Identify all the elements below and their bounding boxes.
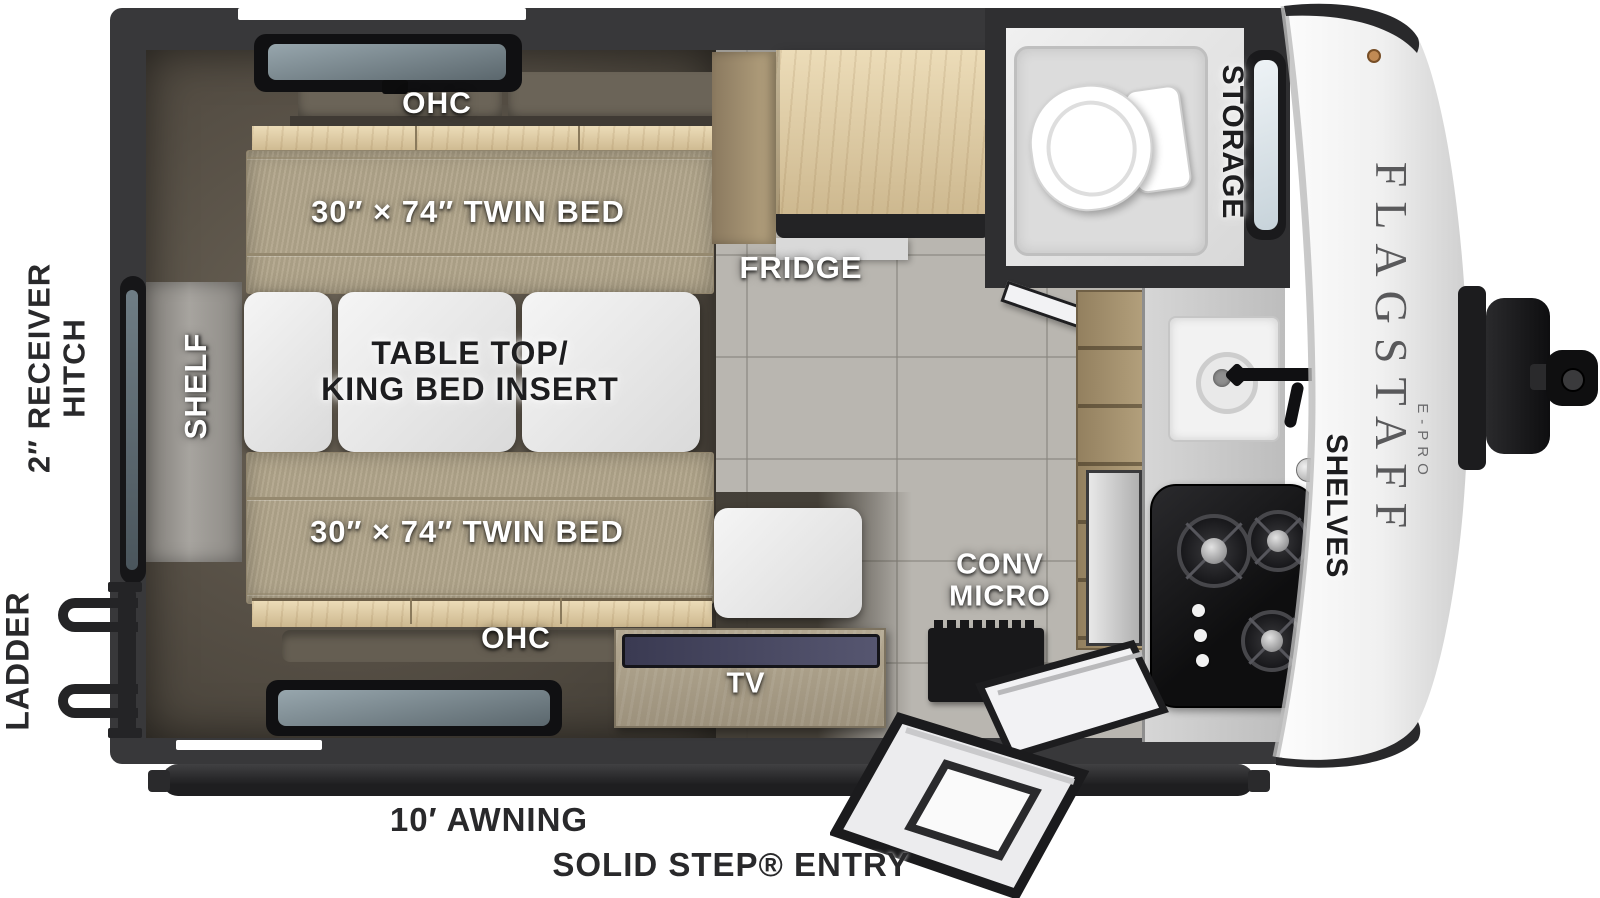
cooktop-control-dot (1194, 629, 1207, 642)
convection-microwave (1086, 470, 1142, 646)
window-marker-bottom (176, 740, 322, 750)
table-top-insert-1 (244, 292, 332, 452)
tv-label: TV (726, 668, 765, 701)
shelf-label: SHELF (178, 333, 214, 440)
wardrobe-cabinet (776, 50, 994, 216)
awning-label: 10′ AWNING (390, 801, 588, 839)
entry-label: SOLID STEP® ENTRY (552, 846, 909, 884)
bedroom-window-glass (278, 690, 550, 726)
bench-seat (714, 508, 862, 618)
brand-model: E-PRO (1414, 252, 1431, 633)
awning-bracket (148, 770, 170, 792)
roof-vent-glass (268, 44, 506, 80)
cooktop-control-dot (1192, 604, 1205, 617)
cooktop-control-dot (1196, 654, 1209, 667)
window-marker-top (238, 8, 526, 20)
twin-bed-bottom-label: 30″ × 74″ TWIN BED (310, 514, 624, 550)
toilet (1022, 67, 1199, 218)
fridge-cabinet-base (776, 214, 990, 238)
brand-name: FLAGSTAFF (1365, 162, 1418, 543)
brand-logo: E-PRO FLAGSTAFF (1365, 162, 1431, 543)
storage-label: STORAGE (1215, 65, 1249, 220)
table-top-label: TABLE TOP/ KING BED INSERT (321, 336, 619, 408)
receiver-hitch-label: 2″ RECEIVER HITCH (22, 263, 91, 473)
cabinet-divider (410, 598, 412, 624)
cabinet-divider (415, 126, 417, 152)
furnace-vent (934, 620, 1038, 630)
ohc-bottom-label: OHC (481, 622, 551, 656)
ladder-label: LADDER (0, 591, 37, 730)
tv-screen (622, 634, 880, 668)
rear-window-glass (126, 290, 138, 570)
floorplan-image: 2″ RECEIVER HITCH LADDER 10′ AWNING SOLI… (0, 0, 1600, 898)
cabinet-divider (560, 598, 562, 624)
front-cap (1232, 0, 1492, 780)
fridge-label: FRIDGE (739, 250, 862, 286)
twin-bed-top-label: 30″ × 74″ TWIN BED (311, 194, 625, 230)
shelves-label: SHELVES (1319, 434, 1353, 579)
conv-micro-label: CONV MICRO (949, 549, 1051, 614)
cabinet-divider (578, 126, 580, 152)
side-cabinet (712, 52, 776, 244)
ohc-top-label: OHC (402, 87, 472, 121)
